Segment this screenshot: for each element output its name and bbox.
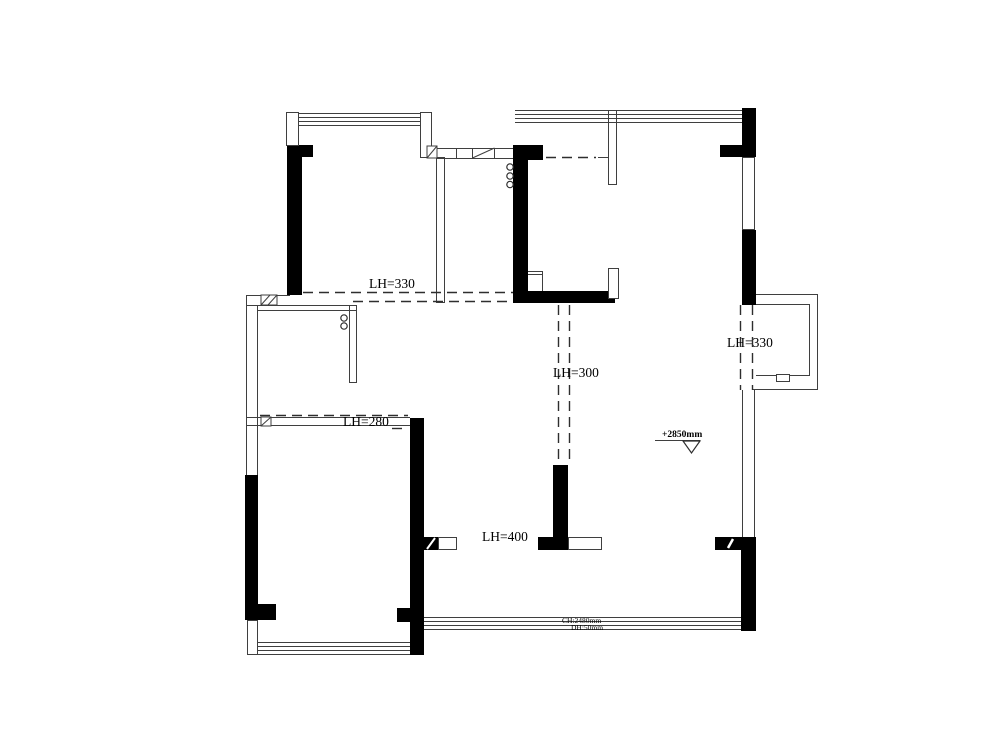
wall-segment <box>715 537 741 550</box>
floor-plan-canvas: LH=330 LH=300 LH=330 LH=280 LH=400 +2850… <box>0 0 1000 750</box>
pipe-circle-marker <box>507 173 513 179</box>
bay-window-notch <box>777 375 790 382</box>
wall-segment <box>742 108 756 157</box>
wall-segment <box>245 475 258 620</box>
wall-segment <box>513 291 615 303</box>
wall-segment <box>397 608 410 622</box>
pipe-circle-marker <box>507 181 513 187</box>
cad-viewport: LH=330 LH=300 LH=330 LH=280 LH=400 +2850… <box>0 0 1000 750</box>
wall-segment <box>538 537 568 550</box>
beam-label-top-left: LH=330 <box>369 276 415 291</box>
level-mark-label: +2850mm <box>662 430 702 440</box>
wall-segment <box>741 537 756 631</box>
beam-label-bottom-center: LH=400 <box>482 529 528 544</box>
window-symbol <box>473 148 495 158</box>
beam-label-mid-left: LH=280 <box>343 414 389 429</box>
dashed-beam-lines <box>260 158 753 466</box>
thin-linework <box>246 110 818 655</box>
wall-segment <box>742 230 756 305</box>
column <box>609 269 619 299</box>
wall-segment <box>410 418 424 655</box>
wall-segment <box>513 145 528 303</box>
column <box>743 158 755 230</box>
door-leaf <box>569 538 602 550</box>
beam-label-right: LH=330 <box>727 335 773 350</box>
column <box>287 113 299 146</box>
beam-label-center: LH=300 <box>553 365 599 380</box>
pipe-markers <box>341 164 513 329</box>
wall-segment <box>258 604 276 620</box>
pipe-circle-marker <box>341 323 347 329</box>
wall-segment <box>720 145 742 157</box>
column <box>248 621 258 655</box>
window-note-line2: DH:50mm <box>571 623 603 632</box>
pipe-circle-marker <box>341 315 347 321</box>
door-leaf <box>439 538 457 550</box>
level-triangle-icon <box>683 441 700 453</box>
structural-walls <box>245 108 756 655</box>
wall-segment <box>287 145 302 295</box>
pipe-circle-marker <box>507 164 513 170</box>
